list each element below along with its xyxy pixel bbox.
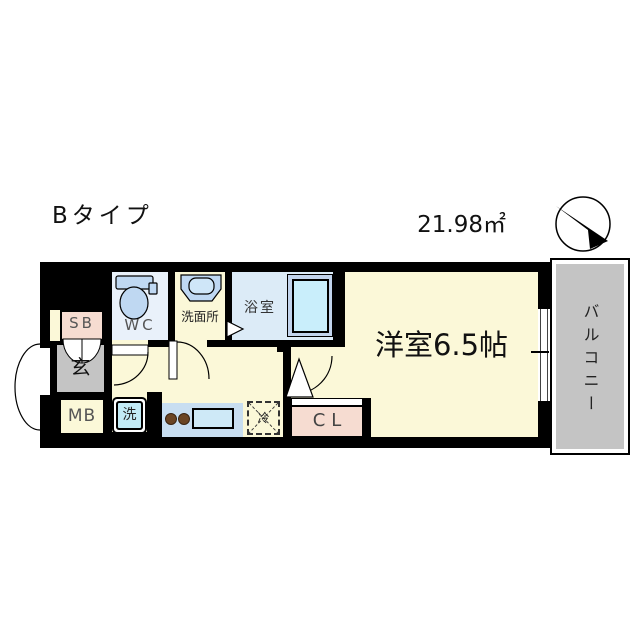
label-entrance: 玄 <box>57 357 104 377</box>
wall <box>363 398 371 437</box>
balcony-window <box>538 308 550 402</box>
label-washroom: 洗面所 <box>175 311 225 324</box>
wall <box>50 392 112 399</box>
kitchen-sink-icon <box>192 408 234 429</box>
wall <box>57 341 104 345</box>
wall <box>50 434 112 448</box>
wall <box>148 340 172 347</box>
wall <box>50 341 57 399</box>
room-washroom <box>175 272 225 340</box>
label-fridge: 冷 <box>247 412 280 424</box>
bathtub-icon <box>292 279 329 333</box>
wall <box>50 399 60 434</box>
wall <box>333 262 345 347</box>
wall <box>104 262 112 448</box>
wall <box>50 272 112 310</box>
wall <box>538 262 550 308</box>
entry-door-opening <box>40 348 50 395</box>
wall <box>538 402 550 448</box>
wall <box>168 262 175 347</box>
label-wc: WC <box>112 318 168 333</box>
wall <box>147 392 162 437</box>
label-meter-box: MB <box>60 408 104 425</box>
floorplan-canvas: Bタイプ 21.98㎡ <box>0 0 640 640</box>
wall <box>110 432 162 438</box>
entry-door-arc <box>15 344 40 430</box>
label-closet: CL <box>291 412 363 430</box>
closet-door-strip <box>291 398 363 406</box>
compass-icon <box>556 197 610 251</box>
wall <box>40 437 550 448</box>
bathtub-surround <box>287 274 333 337</box>
wall <box>40 262 550 272</box>
plan-type-label: Bタイプ <box>52 205 153 228</box>
label-balcony: バルコニー <box>555 270 624 450</box>
label-main-room: 洋室6.5帖 <box>345 331 538 360</box>
wall <box>225 262 232 347</box>
label-washer: 洗 <box>112 408 147 422</box>
plan-area-label: 21.98㎡ <box>400 214 506 237</box>
label-bath: 浴室 <box>234 301 286 315</box>
wall <box>283 345 291 437</box>
label-shoe-box: SB <box>60 316 104 331</box>
wall <box>207 340 333 347</box>
